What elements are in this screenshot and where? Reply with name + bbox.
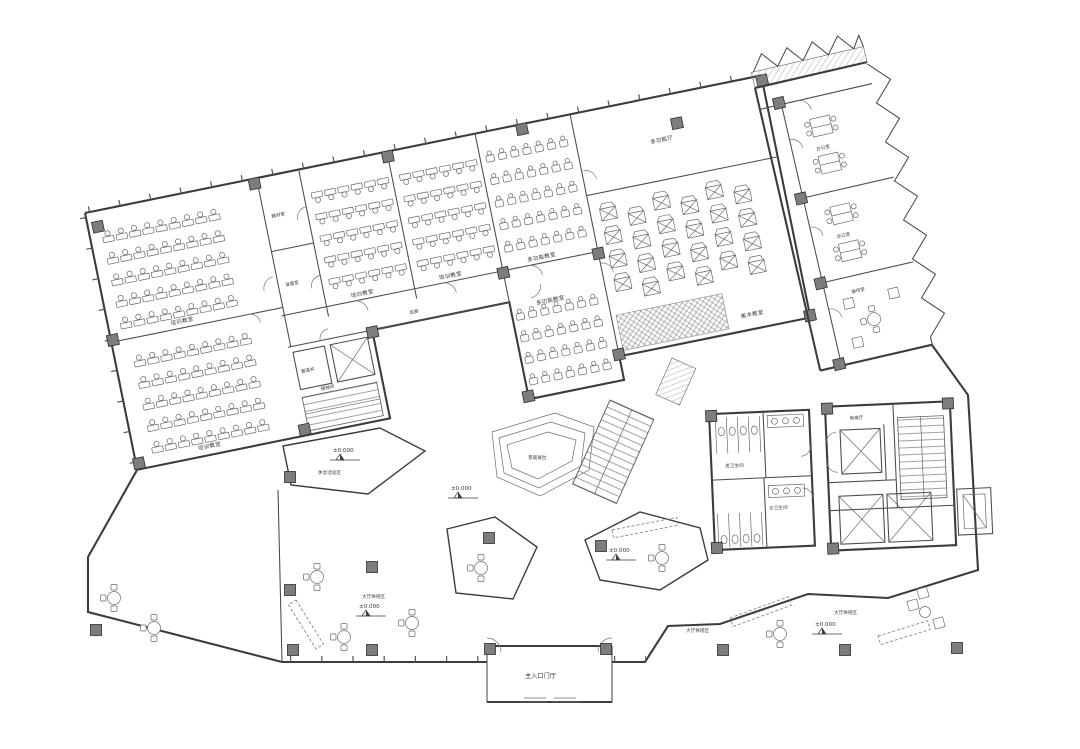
svg-text:±0.000: ±0.000 [359, 604, 380, 610]
entrance-vestibule: 主入口门厅 [485, 638, 613, 702]
room-label-lounge-right-2: 大厅休闲区 [834, 609, 857, 616]
reception-room: 接待室 [841, 278, 909, 348]
wing-east-sawtooth [868, 60, 951, 345]
room-label-office-2: 办公室 [836, 230, 851, 240]
office-2: 办公室 [824, 201, 868, 263]
room-label-wc-m: 男卫生间 [725, 462, 744, 470]
room-label-prep: 准备室 [285, 279, 300, 289]
svg-text:±0.000: ±0.000 [333, 448, 354, 454]
elevation-marker: ±0.000 [356, 604, 386, 616]
classroom-2-desks [133, 332, 269, 453]
office-wing: 办公室 办公室 接待室 [748, 27, 952, 374]
stair-ramp-hatch [656, 358, 696, 405]
room-label-multi-upper: 多功能教室 [526, 250, 556, 264]
elevation-marker: ±0.000 [812, 622, 842, 634]
room-label-lounge-right-1: 大厅休闲区 [686, 627, 709, 634]
multiroom-lower-seats [515, 293, 612, 385]
restroom-core: 男卫生间 女卫生间 [705, 406, 815, 553]
hexagon-island: ±0.000 [585, 512, 708, 590]
floor-plan-page: 培训教室 培训教室 器材室 准备室 培训教室 培训教室 多功能教室 [0, 0, 1080, 749]
floor-plan-canvas: 培训教室 培训教室 器材室 准备室 培训教室 培训教室 多功能教室 [0, 0, 1080, 749]
room-label-wc-f: 女卫生间 [769, 504, 788, 512]
room-label-duct: 管道井 [300, 365, 315, 375]
elevator-core: 电梯厅 [821, 396, 993, 554]
classroom-3-desks [311, 177, 408, 289]
rest-island: 休息洽谈区 ±0.000 [283, 428, 425, 494]
grand-stair [573, 400, 654, 504]
art-room-easels [599, 174, 767, 301]
wing-roof-hatch [751, 47, 867, 88]
room-label-multi-lower: 多功能教室 [535, 293, 565, 307]
room-label-elevator-hall: 电梯厅 [849, 414, 863, 422]
room-label-corridor: 走廊 [409, 307, 420, 316]
svg-text:±0.000: ±0.000 [451, 486, 472, 492]
room-label-reception: 接待室 [851, 285, 866, 295]
room-label-stage-decor: 景观展台 [528, 454, 547, 461]
room-label-rest: 休息洽谈区 [318, 469, 341, 476]
lounge-left: 大厅休闲区 ±0.000 [91, 562, 419, 656]
multiroom-upper-seats [485, 135, 587, 252]
room-label-hall: 多功能厅 [649, 133, 674, 146]
office-1: 办公室 [804, 114, 848, 176]
core-west: 管道井 楼梯间 [293, 337, 383, 431]
room-label-office-1: 办公室 [816, 143, 831, 153]
room-label-entrance: 主入口门厅 [525, 672, 556, 680]
svg-text:±0.000: ±0.000 [609, 548, 630, 554]
classroom-4-desks [399, 159, 496, 271]
room-label-equip: 器材室 [271, 210, 286, 220]
pentagon-island [447, 517, 537, 599]
room-label-lounge-left: 大厅休闲区 [362, 593, 385, 600]
svg-text:±0.000: ±0.000 [815, 622, 836, 628]
classroom-1-desks [102, 208, 238, 329]
room-label-art: 美术教室 [740, 308, 765, 321]
art-storage-hatch [616, 294, 729, 351]
elevation-marker: ±0.000 [448, 486, 478, 498]
